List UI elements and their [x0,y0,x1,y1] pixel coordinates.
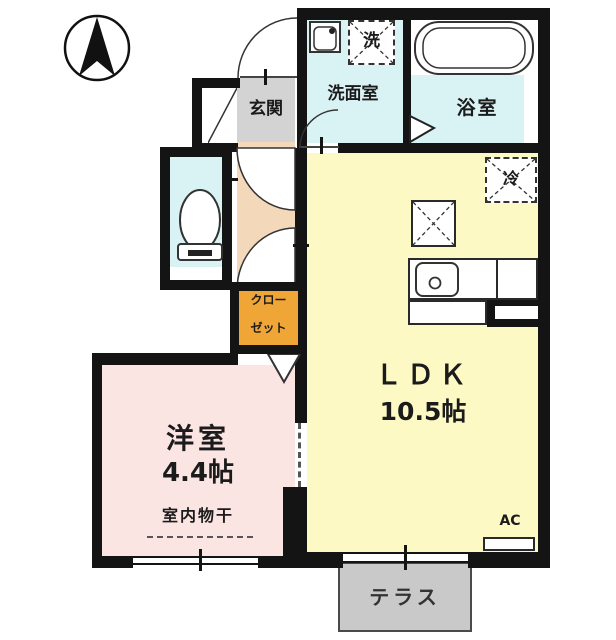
washroom-sink-icon [308,20,344,56]
ldk-size-label: 10.5帖 [330,399,516,425]
indoor-drying-label: 室内物干 [108,508,288,525]
closet-label-line2: ゼット [239,322,298,335]
bedroom-window [133,556,258,565]
wall-bedroom-bottom-left [92,556,133,568]
toilet-icon [174,188,226,266]
genkan-label: 玄関 [236,101,296,119]
kitchen-lower-cabinet [408,300,487,325]
north-compass-icon [60,10,134,84]
ac-label: AC [488,514,532,529]
refrigerator-space-label: 冷 [485,171,537,188]
table-square-diagonals [413,202,454,245]
bedroom-size-label: 4.4帖 [108,460,288,487]
bedroom-label: 洋室 [108,424,288,453]
ac-unit-box [483,537,535,551]
washroom-label: 洗面室 [303,86,403,104]
sliding-door-dashed [298,423,301,487]
wall-right-outer [538,8,550,568]
terrace-label: テラス [345,587,465,608]
wall-toilet-bottom [160,280,232,290]
shoe-cabinet-diagonal [208,88,237,143]
washer-space-label: 洗 [348,33,395,51]
hallway-door-arcs [233,144,299,294]
toilet-floor-strip [170,267,222,280]
bathroom-label: 浴室 [425,99,530,119]
hallway-right-tick [293,244,309,247]
ldk-window-tick [404,545,407,570]
kitchen-counter-divider [496,260,498,298]
wall-ldk-bottom-left [297,552,343,568]
washroom-door-tick [320,137,323,154]
wall-toilet-left [160,147,170,290]
wall-top [297,8,550,20]
kitchen-sink-icon [414,261,460,298]
wall-ldk-top [338,143,550,153]
wall-ldk-bottom-right [468,552,550,568]
closet-door-triangle [266,352,302,384]
floor-plan: 洗 冷 クロー ゼット AC 玄関 洗面室 浴室 ＬＤＫ 10.5帖 洋室 4.… [0,0,616,640]
table-square [411,200,456,247]
kitchen-stub-opening [495,306,538,319]
wall-bedroom-top [92,353,238,365]
ldk-label: ＬＤＫ [330,362,516,390]
wall-entrance-left [192,78,202,150]
entrance-tick [264,69,267,85]
closet-label-line1: クロー [239,294,298,307]
drying-dashed-line [147,536,253,538]
bedroom-window-tick [199,549,202,571]
bathtub-icon [413,20,537,78]
washroom-door-arc [296,106,342,152]
wall-bedroom-left [92,353,102,568]
hallway-left-tick [222,178,238,181]
entrance-door-arc [234,14,302,82]
